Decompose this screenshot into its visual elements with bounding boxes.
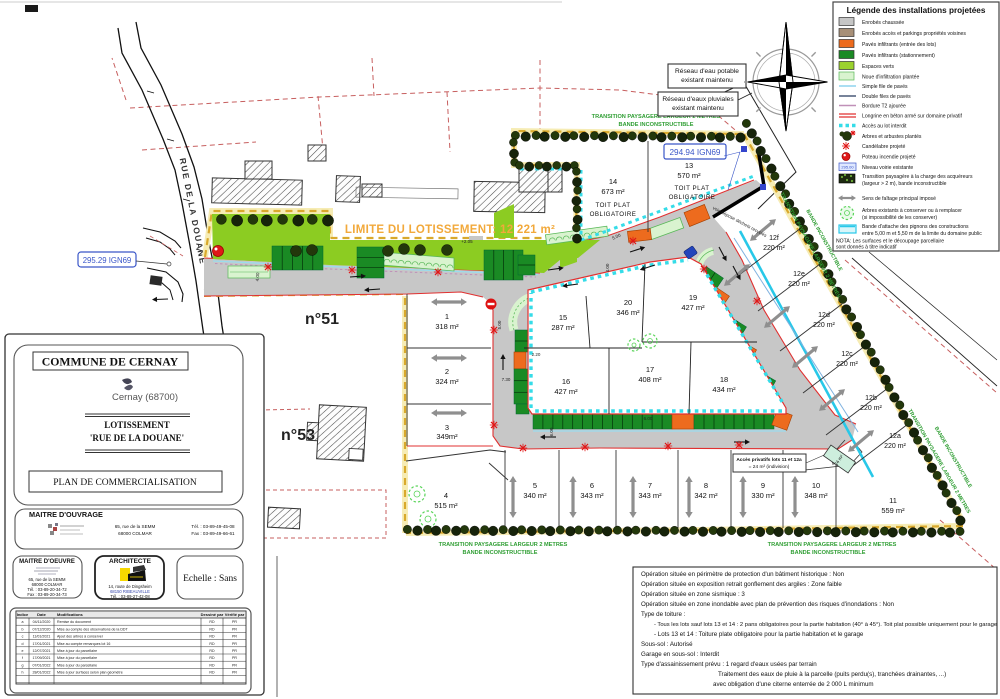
svg-text:427 m²: 427 m² [554, 387, 578, 396]
svg-text:BANDE INCONSTRUCTIBLE: BANDE INCONSTRUCTIBLE [463, 550, 538, 556]
svg-text:RD: RD [209, 627, 215, 631]
svg-text:Vérifié par: Vérifié par [225, 612, 245, 617]
svg-text:Mise à jour du parcellaire: Mise à jour du parcellaire [57, 663, 97, 667]
svg-text:Accès au lot interdit: Accès au lot interdit [862, 124, 907, 130]
svg-text:e: e [22, 649, 24, 653]
svg-text:12a: 12a [889, 433, 901, 440]
svg-text:Enrobés chaussée: Enrobés chaussée [862, 20, 904, 26]
svg-text:c: c [22, 635, 24, 639]
svg-text:MAITRE D'OUVRAGE: MAITRE D'OUVRAGE [29, 510, 103, 519]
svg-text:220 m²: 220 m² [884, 443, 906, 450]
svg-text:COMMUNE DE CERNAY: COMMUNE DE CERNAY [42, 355, 179, 369]
svg-text:Modifications: Modifications [57, 612, 84, 617]
svg-text:n°51: n°51 [305, 311, 339, 328]
svg-text:RD: RD [209, 642, 215, 646]
svg-text:TOIT PLAT: TOIT PLAT [674, 185, 709, 192]
svg-text:Dessiné par: Dessiné par [201, 612, 224, 617]
svg-text:RD: RD [209, 671, 215, 675]
svg-text:'RUE DE LA DOUANE': 'RUE DE LA DOUANE' [90, 433, 184, 443]
svg-text:existant maintenu: existant maintenu [681, 77, 733, 84]
svg-text:9: 9 [761, 481, 765, 490]
svg-text:295.00: 295.00 [841, 165, 854, 170]
svg-text:Indice: Indice [17, 612, 29, 617]
svg-text:220 m²: 220 m² [836, 361, 858, 368]
svg-text:Opération située en exposition: Opération située en exposition retrait g… [641, 581, 842, 588]
svg-text:LIMITE DU LOTISSEMENT: 12 221: LIMITE DU LOTISSEMENT: 12 221 m² [345, 224, 555, 236]
svg-text:RD: RD [209, 649, 215, 653]
svg-text:15: 15 [559, 313, 567, 322]
svg-text:f: f [22, 656, 23, 660]
svg-text:TOIT PLAT: TOIT PLAT [595, 202, 630, 209]
svg-text:11/01/2021: 11/01/2021 [33, 635, 51, 639]
svg-text:n°53: n°53 [281, 427, 315, 444]
svg-text:TRANSITION PAYSAGERE LARGEUR 2: TRANSITION PAYSAGERE LARGEUR 2 METRES [439, 542, 568, 548]
svg-text:346 m²: 346 m² [616, 308, 640, 317]
svg-text:Traitement des eaux de pluie à: Traitement des eaux de pluie à la parcel… [718, 671, 946, 678]
svg-text:Echelle : Sans: Echelle : Sans [183, 574, 237, 584]
svg-text:343 m²: 343 m² [580, 491, 604, 500]
svg-text:5.00: 5.00 [497, 320, 502, 329]
svg-text:Type d'assainissement prévu :: Type d'assainissement prévu : 1 regard d… [641, 661, 817, 668]
svg-text:+2.05: +2.05 [461, 239, 473, 244]
svg-text:TRANSITION PAYSAGERE LARGEUR 2: TRANSITION PAYSAGERE LARGEUR 2 METRES [768, 542, 897, 548]
svg-text:28/01/2022: 28/01/2022 [33, 671, 51, 675]
svg-text:342 m²: 342 m² [694, 491, 718, 500]
svg-text:Sous-sol : Autorisé: Sous-sol : Autorisé [641, 641, 693, 648]
svg-text:68000 COLMAR: 68000 COLMAR [118, 531, 152, 536]
svg-text:(si impossibilité de les conse: (si impossibilité de les conserver) [862, 215, 937, 221]
svg-text:07/12/2020: 07/12/2020 [33, 627, 51, 631]
svg-text:Pavés infiltrants (entrée des: Pavés infiltrants (entrée des lots) [862, 42, 936, 48]
svg-text:Poteau incendie projeté: Poteau incendie projeté [862, 155, 916, 161]
svg-text:8: 8 [704, 481, 708, 490]
svg-text:10: 10 [812, 481, 820, 490]
svg-text:16: 16 [562, 377, 570, 386]
svg-text:Cernay (68700): Cernay (68700) [112, 392, 178, 403]
svg-text:ARCHITECTE: ARCHITECTE [109, 558, 152, 565]
svg-text:Candélabre projeté: Candélabre projeté [862, 144, 905, 150]
svg-text:d: d [22, 642, 24, 646]
svg-text:Mise à jour du parcellaire: Mise à jour du parcellaire [57, 656, 97, 660]
svg-text:Arbres et arbustes plantés: Arbres et arbustes plantés [862, 134, 922, 140]
svg-text:Fax : 03-89-49-66-61: Fax : 03-89-49-66-61 [191, 531, 235, 536]
svg-text:220 m²: 220 m² [813, 322, 835, 329]
svg-text:PR: PR [232, 671, 237, 675]
svg-text:220 m²: 220 m² [788, 281, 810, 288]
svg-text:avec obligation d'une citerne: avec obligation d'une citerne enterrée d… [713, 681, 874, 688]
svg-text:Mise à jour surfaces selon pla: Mise à jour surfaces selon plan géomètre [57, 671, 123, 675]
svg-text:14: 14 [609, 177, 617, 186]
svg-text:PR: PR [232, 663, 237, 667]
svg-text:2.20: 2.20 [532, 352, 541, 357]
svg-text:19: 19 [689, 293, 697, 302]
svg-text:h: h [22, 671, 24, 675]
svg-text:4.00: 4.00 [255, 272, 260, 282]
svg-text:PR: PR [232, 656, 237, 660]
svg-text:Réseau d'eaux pluviales: Réseau d'eaux pluviales [662, 96, 734, 103]
svg-text:PR: PR [232, 649, 237, 653]
svg-text:7.30: 7.30 [502, 377, 511, 382]
svg-text:20: 20 [624, 298, 632, 307]
svg-text:4: 4 [444, 491, 448, 500]
svg-text:17/09/2021: 17/09/2021 [33, 656, 51, 660]
svg-text:PR: PR [232, 642, 237, 646]
svg-text:17/01/2021: 17/01/2021 [33, 642, 51, 646]
svg-text:04/11/2020: 04/11/2020 [33, 620, 51, 624]
svg-text:Légende des installations proj: Légende des installations projetées [847, 6, 986, 15]
svg-text:BANDE INCONSTRUCTIBLE: BANDE INCONSTRUCTIBLE [619, 122, 694, 128]
svg-text:Sens de faîtage principal impo: Sens de faîtage principal imposé [862, 196, 936, 202]
svg-text:287 m²: 287 m² [551, 323, 575, 332]
svg-text:4.00: 4.00 [605, 263, 610, 272]
svg-text:434 m²: 434 m² [712, 385, 736, 394]
svg-text:Longrine en béton armé sur dom: Longrine en béton armé sur domaine priva… [862, 114, 963, 120]
svg-text:OBLIGATOIRE: OBLIGATOIRE [590, 211, 637, 218]
svg-text:65, rue de la SEMM: 65, rue de la SEMM [115, 524, 156, 529]
svg-text:Mise au compte des observation: Mise au compte des observations de la DD… [57, 627, 129, 631]
svg-text:294.94 IGN69: 294.94 IGN69 [670, 148, 721, 157]
svg-text:RD: RD [209, 635, 215, 639]
svg-text:BANDE INCONSTRUCTIBLE: BANDE INCONSTRUCTIBLE [791, 550, 866, 556]
svg-text:PR: PR [232, 627, 237, 631]
svg-text:12/07/2021: 12/07/2021 [33, 649, 51, 653]
svg-text:Bordure T2 ajourée: Bordure T2 ajourée [862, 104, 906, 110]
svg-text:PR: PR [232, 635, 237, 639]
svg-text:515 m²: 515 m² [434, 501, 458, 510]
svg-text:17: 17 [646, 365, 654, 374]
svg-text:220 m²: 220 m² [860, 405, 882, 412]
svg-text:- Lots 13 et 14 : Toiture plat: - Lots 13 et 14 : Toiture plate obligato… [654, 631, 864, 638]
svg-text:Ajout des arbres à conserver: Ajout des arbres à conserver [57, 635, 104, 639]
svg-text:entre 5,00 m et 5,50 m de la l: entre 5,00 m et 5,50 m de la limite du d… [862, 231, 982, 237]
svg-text:408 m²: 408 m² [638, 375, 662, 384]
svg-text:g: g [22, 663, 24, 667]
svg-text:Date: Date [37, 612, 46, 617]
svg-text:12d: 12d [818, 312, 830, 319]
svg-text:2: 2 [445, 367, 449, 376]
svg-text:Double files de pavés: Double files de pavés [862, 94, 911, 100]
svg-text:12b: 12b [865, 395, 877, 402]
svg-text:Type de toiture :: Type de toiture : [641, 611, 686, 618]
svg-text:LOTISSEMENT: LOTISSEMENT [104, 420, 170, 430]
svg-text:12f: 12f [769, 235, 779, 242]
svg-text:Pavés infiltrants (stationneme: Pavés infiltrants (stationnement) [862, 53, 935, 59]
svg-text:673 m²: 673 m² [601, 187, 625, 196]
svg-text:Remise du document: Remise du document [57, 620, 91, 624]
svg-text:Simple file de pavés: Simple file de pavés [862, 84, 908, 90]
svg-text:(largeur > 2 m), bande inconst: (largeur > 2 m), bande inconstructible [862, 181, 947, 187]
svg-text:RD: RD [209, 663, 215, 667]
svg-text:OBLIGATOIRE: OBLIGATOIRE [669, 194, 716, 201]
svg-text:Mise au compte remarques lot 1: Mise au compte remarques lot 16 [57, 642, 110, 646]
svg-text:RD: RD [209, 620, 215, 624]
svg-text:Niveau voirie existante: Niveau voirie existante [862, 165, 913, 171]
svg-text:Opération située en zone sismi: Opération située en zone sismique : 3 [641, 591, 745, 598]
svg-text:559 m²: 559 m² [881, 506, 905, 515]
svg-text:11: 11 [889, 496, 897, 505]
svg-text:07/01/2022: 07/01/2022 [33, 663, 51, 667]
svg-text:3: 3 [445, 423, 449, 432]
svg-text:570 m²: 570 m² [677, 171, 701, 180]
svg-text:Fax : 03-89-20-34-73: Fax : 03-89-20-34-73 [27, 592, 67, 597]
svg-text:427 m²: 427 m² [681, 303, 705, 312]
svg-text:Enrobés accès et parkings prop: Enrobés accès et parkings propriétés voi… [862, 31, 966, 37]
svg-text:340 m²: 340 m² [523, 491, 547, 500]
svg-text:PR: PR [232, 620, 237, 624]
svg-text:Arbres existants à conserver o: Arbres existants à conserver ou à rempla… [862, 208, 962, 214]
svg-text:349m²: 349m² [436, 432, 458, 441]
svg-text:RD: RD [209, 656, 215, 660]
svg-text:330 m²: 330 m² [751, 491, 775, 500]
svg-text:Mise à jour du parcellaire: Mise à jour du parcellaire [57, 649, 97, 653]
svg-text:Tél. : 03-89-27-42-08: Tél. : 03-89-27-42-08 [110, 594, 150, 599]
svg-text:Opération située en périmètre: Opération située en périmètre de protect… [641, 571, 845, 578]
svg-text:Garage en sous-sol : Interdit: Garage en sous-sol : Interdit [641, 651, 719, 658]
svg-text:Transition paysagère à la char: Transition paysagère à la charge des acq… [862, 174, 973, 180]
svg-text:348 m²: 348 m² [804, 491, 828, 500]
svg-text:Réseau d'eau potable: Réseau d'eau potable [675, 68, 739, 75]
svg-text:b: b [22, 627, 24, 631]
svg-text:PLAN DE COMMERCIALISATION: PLAN DE COMMERCIALISATION [53, 478, 197, 488]
svg-text:324 m²: 324 m² [435, 377, 459, 386]
svg-text:12c: 12c [841, 351, 853, 358]
svg-text:sont donnés à titre indicatif: sont donnés à titre indicatif [836, 245, 897, 251]
svg-text:220 m²: 220 m² [763, 245, 785, 252]
svg-text:1: 1 [445, 312, 449, 321]
svg-text:343 m²: 343 m² [638, 491, 662, 500]
svg-text:5: 5 [533, 481, 537, 490]
svg-text:existant maintenu: existant maintenu [672, 105, 724, 112]
svg-text:= 24 m² (indivision): = 24 m² (indivision) [749, 464, 790, 470]
svg-text:Accès privatifs lots 11 et 12a: Accès privatifs lots 11 et 12a [736, 457, 802, 463]
svg-text:Noue d'infiltration plantée: Noue d'infiltration plantée [862, 75, 919, 81]
svg-text:7: 7 [648, 481, 652, 490]
svg-text:13: 13 [685, 161, 693, 170]
svg-text:a: a [22, 620, 24, 624]
svg-text:295.29 IGN69: 295.29 IGN69 [83, 256, 132, 265]
svg-text:6.00: 6.00 [644, 416, 653, 421]
svg-text:12e: 12e [793, 271, 805, 278]
svg-text:Opération située en zone inond: Opération située en zone inondable avec … [641, 601, 895, 608]
svg-text:18: 18 [720, 375, 728, 384]
svg-text:Bande d'attache des pignons de: Bande d'attache des pignons des construc… [862, 224, 969, 230]
svg-text:MAITRE D'OEUVRE: MAITRE D'OEUVRE [19, 559, 75, 565]
svg-text:6: 6 [590, 481, 594, 490]
svg-text:Tél. : 03-89-49-45-08: Tél. : 03-89-49-45-08 [191, 524, 235, 529]
svg-text:6.00: 6.00 [549, 427, 554, 436]
svg-text:318 m²: 318 m² [435, 322, 459, 331]
svg-text:Espaces verts: Espaces verts [862, 64, 894, 70]
svg-text:- Tous les lots sauf lots 13 e: - Tous les lots sauf lots 13 et 14 : 2 p… [654, 622, 997, 628]
